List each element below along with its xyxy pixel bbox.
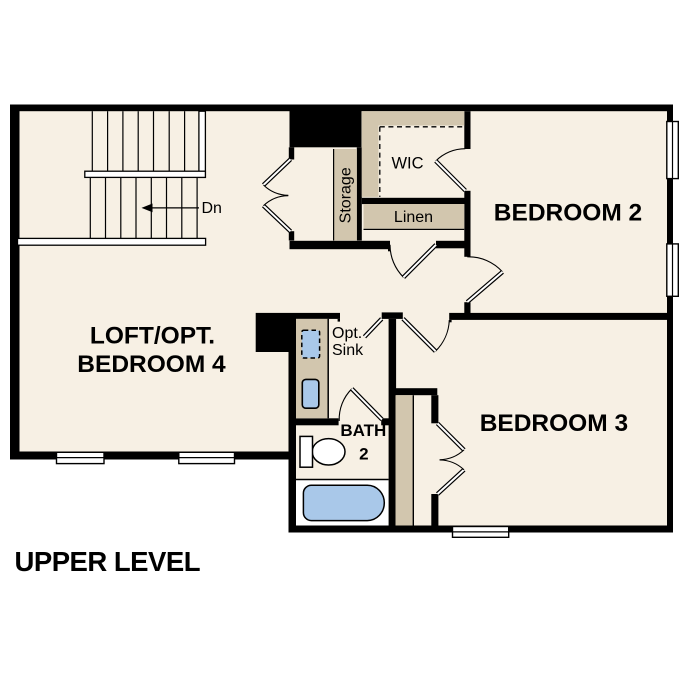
- svg-text:LOFT/OPT.: LOFT/OPT.: [90, 322, 215, 349]
- svg-text:BATH: BATH: [340, 421, 386, 440]
- svg-text:Storage: Storage: [338, 167, 355, 223]
- svg-text:Dn: Dn: [202, 200, 222, 217]
- svg-text:Sink: Sink: [332, 342, 364, 359]
- svg-text:Opt.: Opt.: [332, 325, 362, 342]
- svg-text:WIC: WIC: [391, 155, 423, 173]
- svg-text:2: 2: [359, 444, 368, 463]
- svg-text:BEDROOM 2: BEDROOM 2: [494, 200, 642, 227]
- svg-text:BEDROOM 3: BEDROOM 3: [480, 410, 628, 437]
- svg-text:UPPER LEVEL: UPPER LEVEL: [15, 546, 201, 577]
- svg-text:BEDROOM 4: BEDROOM 4: [77, 351, 226, 378]
- svg-text:Linen: Linen: [394, 209, 433, 226]
